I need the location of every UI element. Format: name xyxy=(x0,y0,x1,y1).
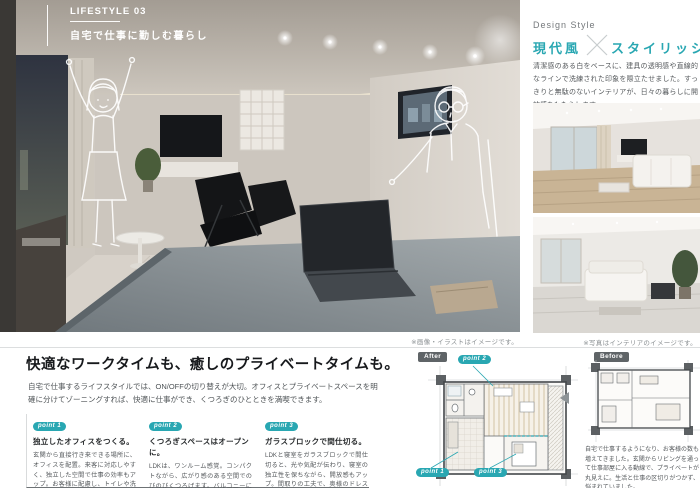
point-1-title: 独立したオフィスをつくる。 xyxy=(33,436,136,447)
lattice-panel xyxy=(240,90,284,150)
cross-icon xyxy=(585,33,609,62)
city-light xyxy=(20,150,28,190)
interior-photo-top xyxy=(533,103,700,213)
point-3-body: LDKと寝室をガラスブロックで間仕切ると、光や気配が伝わり、寝室の独立性を保ちな… xyxy=(265,451,368,488)
header-horizontal-rule xyxy=(70,21,120,22)
design-style-row: 現代風 スタイリッシュ xyxy=(533,34,700,60)
before-after-arrow-icon xyxy=(560,392,569,404)
style-stylish: スタイリッシュ xyxy=(611,38,700,57)
point-2-title: くつろぎスペースはオープンに。 xyxy=(149,436,252,458)
lifestyle-title: 自宅で仕事に勤しむ暮らし xyxy=(70,27,208,42)
lifestyle-number-label: LIFESTYLE 03 xyxy=(70,6,146,17)
plan-point-3-badge: point 3 xyxy=(474,468,507,477)
main-photo-caption: ※画像・イラストはイメージです。 xyxy=(330,336,518,346)
kitchen-counter xyxy=(16,215,66,332)
before-floorplan-drawing xyxy=(588,360,700,442)
style-modern: 現代風 xyxy=(533,38,581,57)
point-2-badge: point 2 xyxy=(149,422,182,431)
interior-photo-bottom xyxy=(533,217,700,333)
point-3-title: ガラスブロックで間仕切る。 xyxy=(265,436,368,447)
plan-point-2-badge: point 2 xyxy=(458,355,491,364)
counter-top xyxy=(22,238,60,246)
lifestyle-header: LIFESTYLE 03 自宅で仕事に勤しむ暮らし xyxy=(0,0,360,60)
after-floorplan: point 2 point 1 point 3 xyxy=(398,356,583,488)
design-style-label: Design Style xyxy=(533,20,596,30)
feature-lead: 自宅で仕事するライフスタイルでは、ON/OFFの切り替えが大切。オフィスとプライ… xyxy=(28,380,378,406)
tv xyxy=(160,115,222,157)
interior-photo-bottom-scene xyxy=(533,217,700,333)
main-interior-photo: LIFESTYLE 03 自宅で仕事に勤しむ暮らし xyxy=(0,0,520,332)
section-divider xyxy=(0,347,700,348)
before-floorplan xyxy=(588,360,700,442)
point-column-3: point 3 ガラスブロックで間仕切る。 LDKと寝室をガラスブロックで間仕切… xyxy=(265,414,368,487)
points-row: point 1 独立したオフィスをつくる。 玄関から直接行き来できる場所に、オフ… xyxy=(26,414,369,488)
before-description: 自宅で仕事するようになり、お客様の数も増えてきました。玄関からリビングを通って仕… xyxy=(585,446,699,488)
feature-heading: 快適なワークタイムも、癒しのプライベートタイムも。 xyxy=(26,353,399,374)
plan-point-1-badge: point 1 xyxy=(416,468,449,477)
brochure-page: LIFESTYLE 03 自宅で仕事に勤しむ暮らし ※画像・イラストはイメージで… xyxy=(0,0,700,488)
point-1-body: 玄関から直接行き来できる場所に、オフィスを配置。来客に対応しやすく、独立した空間… xyxy=(33,451,136,488)
point-column-2: point 2 くつろぎスペースはオープンに。 LDKは、ワンルーム感覚。コンパ… xyxy=(149,414,252,487)
right-photos-caption: ※写真はインテリアのイメージです。 xyxy=(533,337,697,347)
point-3-badge: point 3 xyxy=(265,422,298,431)
interior-photo-top-scene xyxy=(533,103,700,213)
header-vertical-rule xyxy=(47,5,48,46)
point-column-1: point 1 独立したオフィスをつくる。 玄関から直接行き来できる場所に、オフ… xyxy=(33,414,136,487)
point-2-body: LDKは、ワンルーム感覚。コンパクトながら、広がり感のある空間でのびのびくつろげ… xyxy=(149,462,252,488)
point-1-badge: point 1 xyxy=(33,422,66,431)
magazine xyxy=(430,280,498,314)
